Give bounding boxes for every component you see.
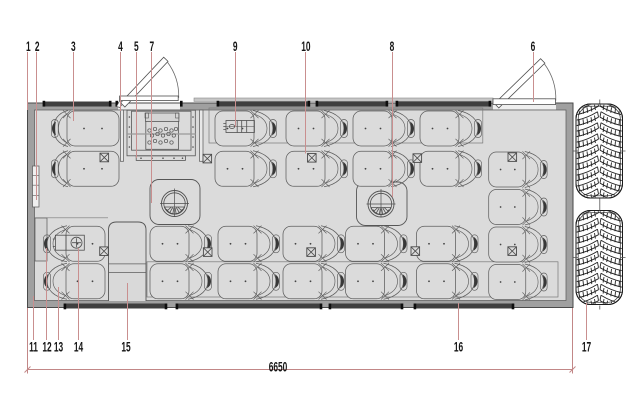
svg-text:2: 2 <box>35 40 40 54</box>
svg-text:15: 15 <box>121 341 130 355</box>
svg-text:17: 17 <box>582 341 591 355</box>
svg-text:12: 12 <box>42 341 51 355</box>
svg-text:1: 1 <box>26 40 31 54</box>
svg-text:4: 4 <box>118 40 123 54</box>
svg-text:13: 13 <box>54 341 63 355</box>
svg-text:14: 14 <box>74 341 84 355</box>
svg-text:7: 7 <box>149 40 154 54</box>
svg-text:10: 10 <box>301 40 310 54</box>
svg-text:8: 8 <box>390 40 395 54</box>
svg-text:6: 6 <box>531 40 536 54</box>
svg-text:3: 3 <box>71 40 76 54</box>
svg-text:5: 5 <box>134 40 139 54</box>
svg-text:16: 16 <box>454 341 463 355</box>
svg-text:6650: 6650 <box>269 361 288 375</box>
svg-text:11: 11 <box>29 341 38 355</box>
svg-text:9: 9 <box>233 40 238 54</box>
